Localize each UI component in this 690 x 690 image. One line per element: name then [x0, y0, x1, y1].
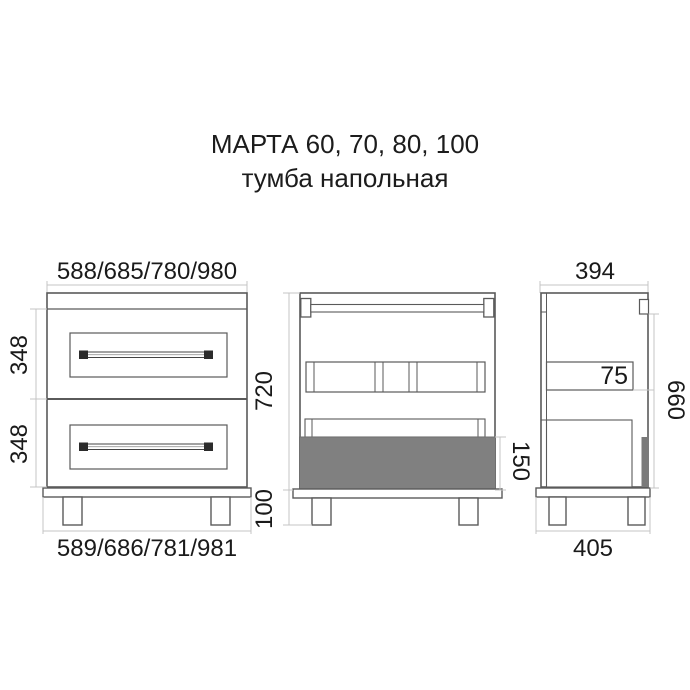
carcass-height-dimension: 720 — [251, 371, 278, 411]
side-gray-strip — [642, 437, 649, 487]
back-drawer-box — [300, 437, 496, 490]
drawer-box-height-dimension: 150 — [507, 441, 534, 481]
back-bottom-panel — [293, 489, 502, 498]
side-top-depth-dimension: 394 — [575, 258, 615, 285]
back-left-leg — [312, 498, 331, 525]
side-bottom-depth-dimension: 405 — [573, 535, 613, 562]
front-view: 588/685/780/980 — [6, 258, 251, 562]
front-left-leg — [63, 497, 82, 525]
upper-drawer-height-dimension: 348 — [6, 335, 33, 375]
rail-height-dimension: 75 — [600, 362, 628, 390]
lower-drawer-handle — [79, 443, 213, 452]
side-bottom-panel — [536, 488, 650, 497]
back-right-leg — [459, 498, 478, 525]
side-drawer-box — [547, 420, 633, 487]
back-middle-beam — [306, 362, 485, 392]
side-left-leg — [549, 497, 566, 525]
side-right-leg — [628, 497, 645, 525]
back-right-bracket — [484, 299, 494, 318]
side-view: 394 75 660 — [536, 258, 689, 562]
back-top-rail — [311, 305, 484, 313]
back-view: 720 100 150 — [251, 293, 534, 529]
front-bottom-width-dimension: 589/686/781/981 — [57, 535, 237, 562]
upper-drawer-handle — [79, 351, 213, 360]
back-lower-rail — [305, 419, 485, 437]
technical-drawing-page: МАРТА 60, 70, 80, 100 тумба напольная 58… — [0, 0, 690, 690]
front-bottom-panel — [43, 488, 251, 497]
front-right-leg — [211, 497, 230, 525]
side-top-bracket — [640, 300, 649, 315]
dimension-drawing: 588/685/780/980 — [0, 0, 690, 690]
lower-drawer-height-dimension: 348 — [6, 424, 33, 464]
plinth-height-dimension: 100 — [251, 489, 278, 529]
front-top-width-dimension: 588/685/780/980 — [57, 258, 237, 285]
side-height-dimension: 660 — [662, 380, 689, 420]
back-left-bracket — [301, 299, 311, 318]
